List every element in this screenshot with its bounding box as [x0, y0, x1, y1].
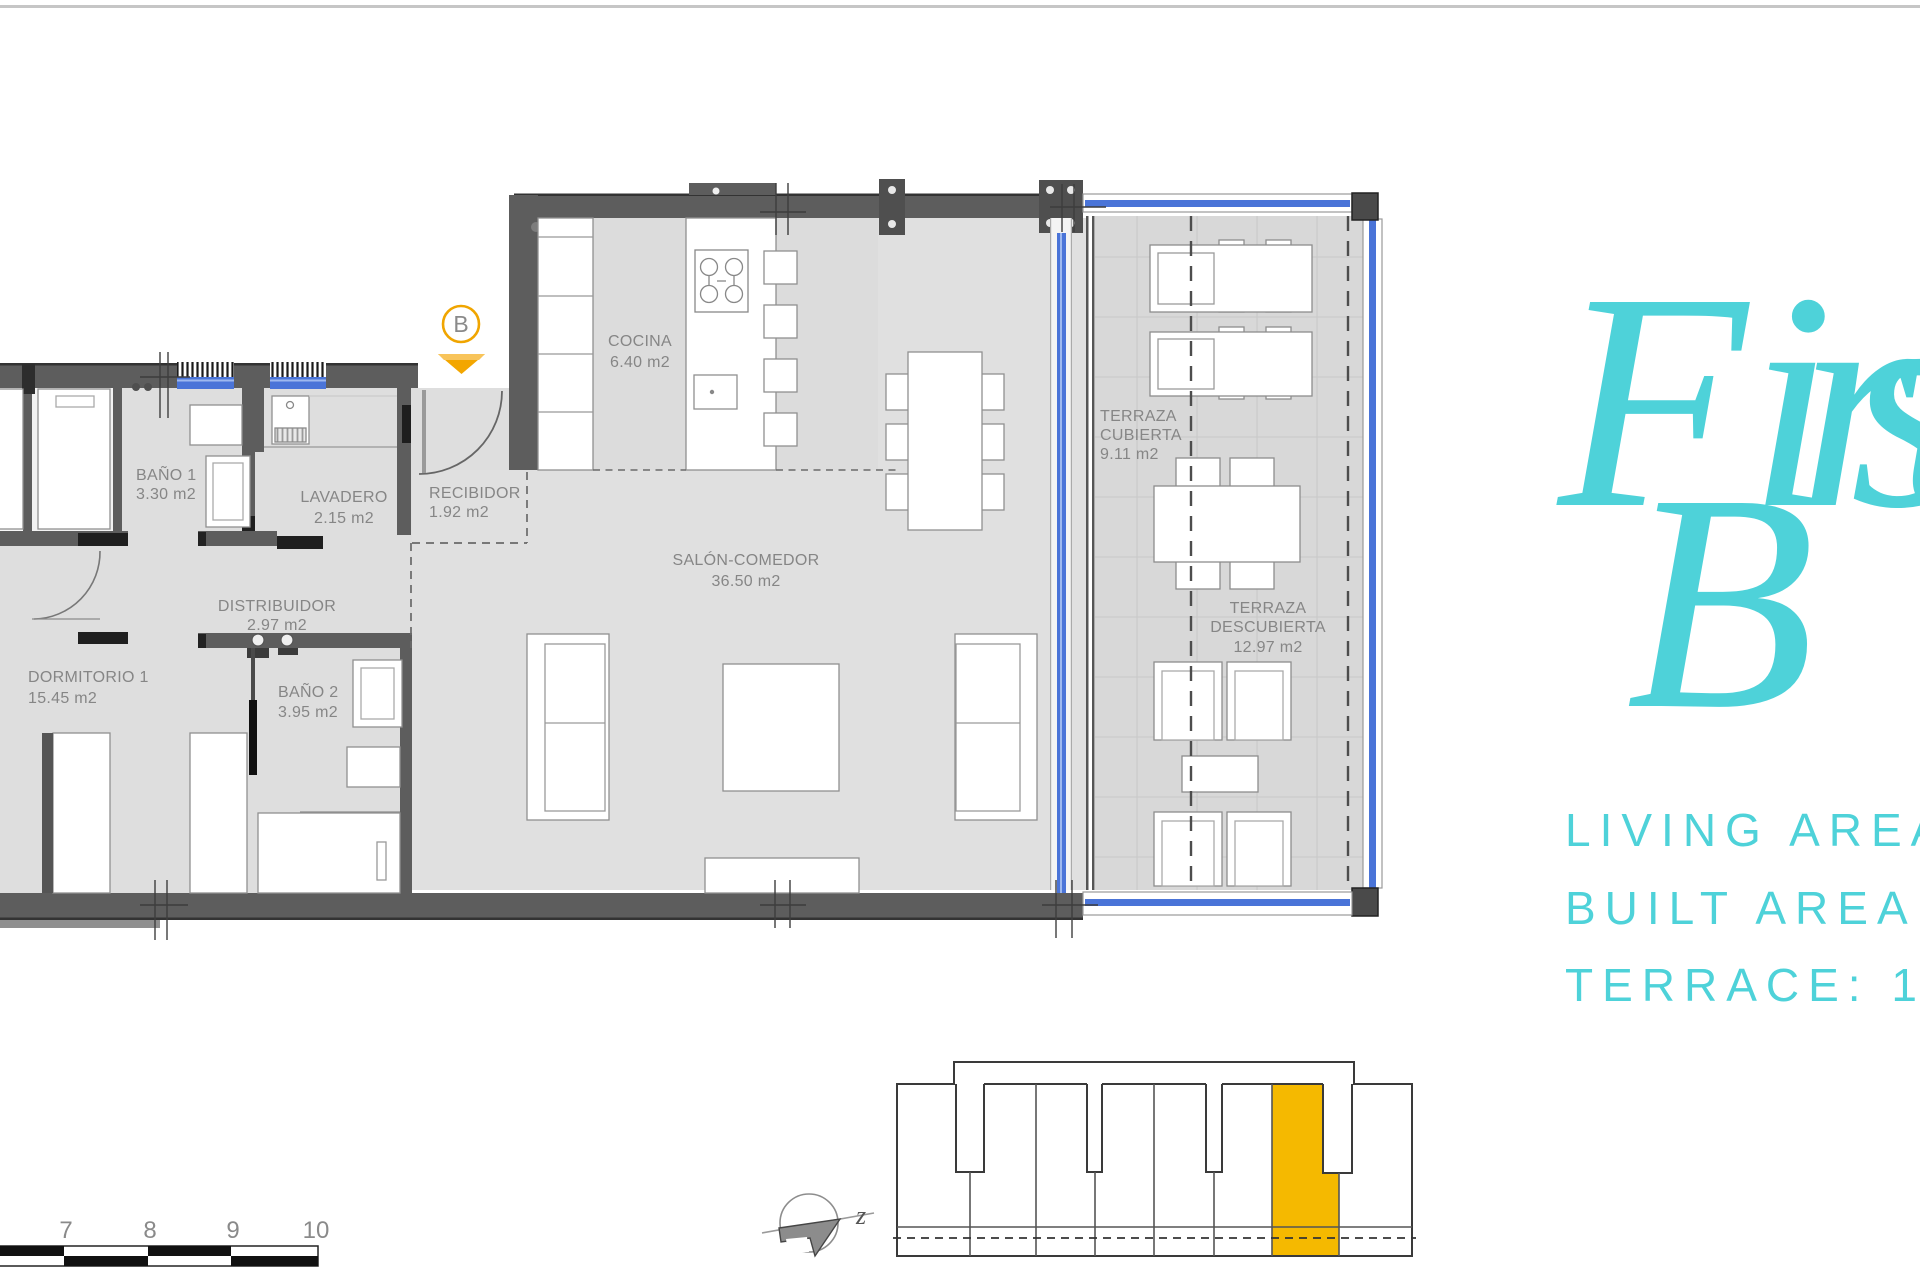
- svg-text:12.97 m2: 12.97 m2: [1233, 639, 1302, 656]
- svg-text:9.11 m2: 9.11 m2: [1100, 446, 1159, 463]
- svg-text:2.15 m2: 2.15 m2: [314, 510, 374, 527]
- svg-text:7: 7: [59, 1217, 72, 1244]
- svg-text:8: 8: [143, 1217, 156, 1244]
- svg-text:BAÑO 1: BAÑO 1: [136, 464, 197, 484]
- svg-text:TERRAZA: TERRAZA: [1230, 600, 1307, 617]
- svg-text:3.95 m2: 3.95 m2: [278, 704, 338, 721]
- svg-text:LIVING AREA: 6: LIVING AREA: 6: [1565, 804, 1920, 856]
- svg-text:RECIBIDOR: RECIBIDOR: [429, 485, 521, 502]
- svg-text:TERRACE: 13.0: TERRACE: 13.0: [1565, 959, 1920, 1011]
- svg-text:2.97 m2: 2.97 m2: [247, 617, 307, 634]
- svg-text:10: 10: [303, 1217, 330, 1244]
- svg-text:DESCUBIERTA: DESCUBIERTA: [1210, 619, 1326, 636]
- svg-text:COCINA: COCINA: [608, 333, 672, 350]
- svg-text:DORMITORIO 1: DORMITORIO 1: [28, 669, 149, 686]
- svg-text:BAÑO 2: BAÑO 2: [278, 681, 339, 701]
- svg-text:z: z: [855, 1201, 866, 1230]
- svg-text:36.50 m2: 36.50 m2: [711, 573, 780, 590]
- svg-text:3.30 m2: 3.30 m2: [136, 486, 196, 503]
- svg-text:15.45 m2: 15.45 m2: [28, 690, 97, 707]
- svg-text:DISTRIBUIDOR: DISTRIBUIDOR: [218, 598, 336, 615]
- svg-text:B: B: [1626, 431, 1815, 774]
- svg-text:LAVADERO: LAVADERO: [300, 489, 387, 506]
- svg-text:6.40 m2: 6.40 m2: [610, 354, 670, 371]
- svg-text:9: 9: [226, 1217, 239, 1244]
- svg-text:SALÓN-COMEDOR: SALÓN-COMEDOR: [672, 550, 819, 569]
- svg-text:B: B: [453, 311, 468, 337]
- svg-text:1.92 m2: 1.92 m2: [429, 504, 489, 521]
- svg-text:BUILT AREA: 8: BUILT AREA: 8: [1565, 882, 1920, 934]
- svg-text:CUBIERTA: CUBIERTA: [1100, 427, 1182, 444]
- svg-text:TERRAZA: TERRAZA: [1100, 408, 1177, 425]
